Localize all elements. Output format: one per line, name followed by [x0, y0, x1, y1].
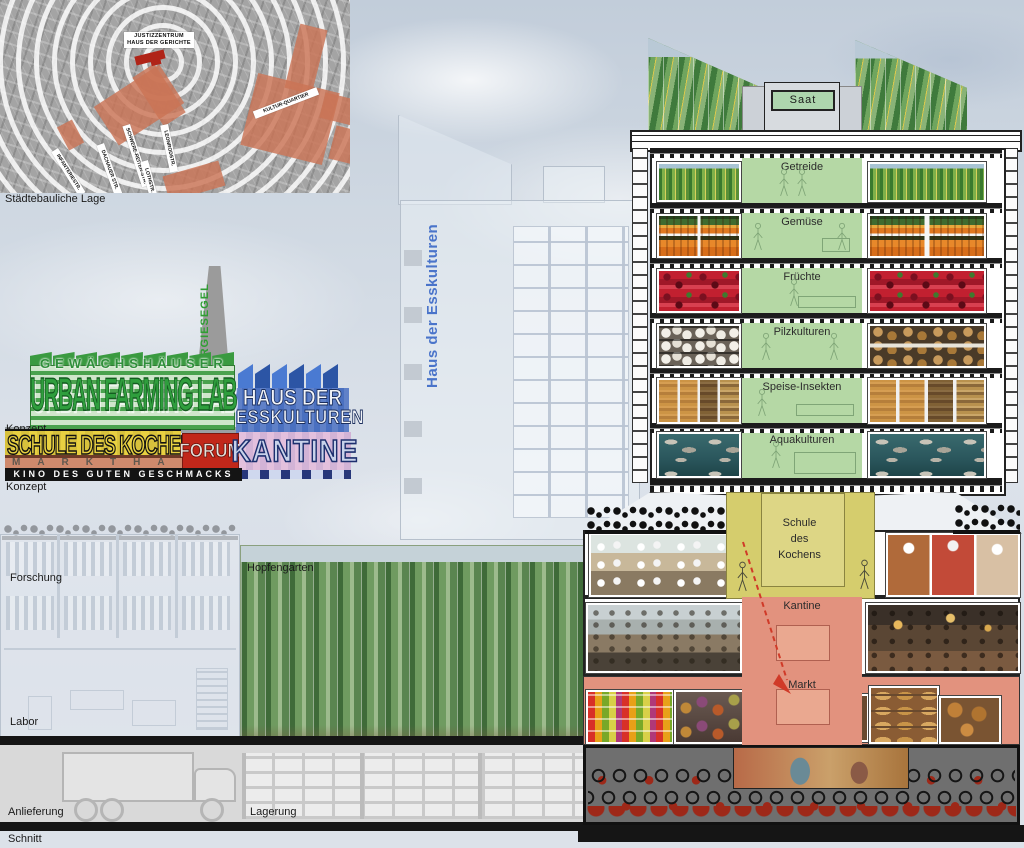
person-silhouette [796, 168, 808, 198]
kantine-block: KANTINE [239, 432, 351, 470]
kantine-label: KANTINE [232, 433, 359, 469]
lab-equipment-sketch [132, 700, 176, 726]
markthalle-interior-photo [586, 603, 742, 673]
market-stall-photo [866, 603, 1020, 673]
insekten-photo-left [657, 378, 741, 424]
left-building-window [182, 596, 230, 630]
map-center-label: JUSTIZZENTRUM HAUS DER GERICHTE [124, 32, 194, 48]
floor-slab [650, 368, 1002, 378]
saat-label: Saat [771, 90, 835, 111]
konzept-caption-bottom: Konzept [6, 481, 46, 493]
person-silhouette [778, 168, 790, 198]
left-building-column [116, 534, 119, 638]
left-building-window [182, 542, 230, 576]
person-silhouette [770, 440, 782, 470]
market-fruit-photo [586, 690, 674, 744]
floor-furniture-sketch [798, 296, 856, 308]
labor-label: Labor [10, 716, 38, 728]
left-building-column [175, 534, 178, 638]
person-silhouette [858, 558, 871, 592]
person-silhouette [756, 388, 768, 418]
left-building-window [123, 596, 171, 630]
mid-tower-sail [398, 115, 512, 205]
lab-equipment-sketch [196, 668, 228, 730]
floor-furniture-sketch [822, 238, 850, 252]
getreide-photo-left [657, 162, 741, 202]
mid-tower-core-box [404, 307, 422, 323]
person-silhouette [752, 222, 764, 252]
mid-tower-core-box [404, 250, 422, 266]
market-pastry-photo [939, 696, 1001, 744]
left-ground-bar [0, 822, 590, 831]
lab-equipment-sketch [70, 690, 124, 710]
schnitt-caption: Schnitt [8, 833, 42, 845]
forum-block: FORUM [182, 433, 239, 469]
person-silhouette [828, 332, 840, 362]
left-building-window [123, 542, 171, 576]
pilz-photo-right [868, 324, 986, 368]
aqua-tank-sketch [794, 452, 856, 474]
mid-tower-label: Haus der Esskulturen [424, 218, 441, 388]
truck-cab-sketch [194, 768, 236, 802]
podium-roof-planting-right [953, 504, 1020, 534]
mid-tower-penthouse [543, 166, 605, 203]
left-building-window [64, 542, 112, 576]
cinema-red-wave [586, 806, 1016, 821]
anlieferung-label: Anlieferung [8, 806, 64, 818]
left-building-window [6, 542, 54, 576]
mid-tower-core-box [404, 421, 422, 437]
mid-tower-core-box [404, 364, 422, 380]
haus-der-esskulturen-block: HAUS DER ESSKULTUREN [236, 388, 349, 435]
market-bread-photo [869, 686, 939, 744]
site-map-caption: Städtebauliche Lage [5, 193, 105, 205]
forschung-label: Forschung [10, 572, 62, 584]
kantine-sub-band [239, 470, 351, 479]
floor-label-fruechte: Früchte [742, 271, 862, 283]
left-building-column [57, 534, 60, 638]
cooking-class-photo [589, 533, 733, 597]
mid-tower-core-box [404, 478, 422, 494]
floor-furniture-sketch [796, 404, 854, 416]
kids-cooking-photo [886, 533, 1020, 597]
floor-label-aquakulturen: Aquakulturen [742, 434, 862, 446]
flow-arrow [735, 538, 805, 700]
gemuese-photo-right [868, 214, 986, 258]
scaffold-column-left [632, 148, 648, 483]
aqua-photo-right [868, 432, 986, 478]
podium-roof-planting-left [585, 506, 733, 534]
hopfengarten-label: Hopfengarten [247, 562, 314, 574]
floor-slab [650, 258, 1002, 268]
left-building-floorline [4, 648, 236, 650]
insekten-photo-right [868, 378, 986, 424]
left-building-window [64, 596, 112, 630]
fruechte-photo-right [868, 269, 986, 313]
right-ground-bar [578, 825, 1024, 842]
floor-slab [650, 148, 1002, 158]
kino-band: KINO DES GUTEN GESCHMACKS [5, 468, 242, 481]
truck-trailer-sketch [62, 752, 194, 802]
site-map: JUSTIZZENTRUM HAUS DER GERICHTE KULTUR-Q… [0, 0, 350, 193]
left-building-window [6, 596, 54, 630]
person-silhouette [760, 332, 772, 362]
floor-slab [650, 203, 1002, 213]
esskulturen-label: ESSKULTUREN [236, 408, 349, 430]
aqua-photo-left [657, 432, 741, 478]
urban-farming-lab-title: URBAN FARMING LAB [30, 368, 236, 422]
cinema-screen-photo [733, 747, 909, 789]
map-center-label-line2: HAUS DER GERICHTE [127, 40, 191, 46]
left-section-slab [0, 736, 590, 745]
map-center-label-line1: JUSTIZZENTRUM [134, 33, 184, 39]
fruechte-photo-left [657, 269, 741, 313]
truck-wheel [74, 798, 98, 822]
roof-greenhouse-sail-right [855, 40, 967, 132]
getreide-photo-right [868, 162, 986, 202]
truck-wheel [200, 798, 224, 822]
truck-wheel [100, 798, 124, 822]
mid-tower-window-grid [513, 226, 629, 518]
lagerung-label: Lagerung [250, 806, 297, 818]
presentation-board: JUSTIZZENTRUM HAUS DER GERICHTE KULTUR-Q… [0, 0, 1024, 848]
gemuese-photo-left [657, 214, 741, 258]
pilz-photo-left [657, 324, 741, 368]
floor-slab-base [650, 478, 1002, 492]
floor-slab [650, 313, 1002, 323]
